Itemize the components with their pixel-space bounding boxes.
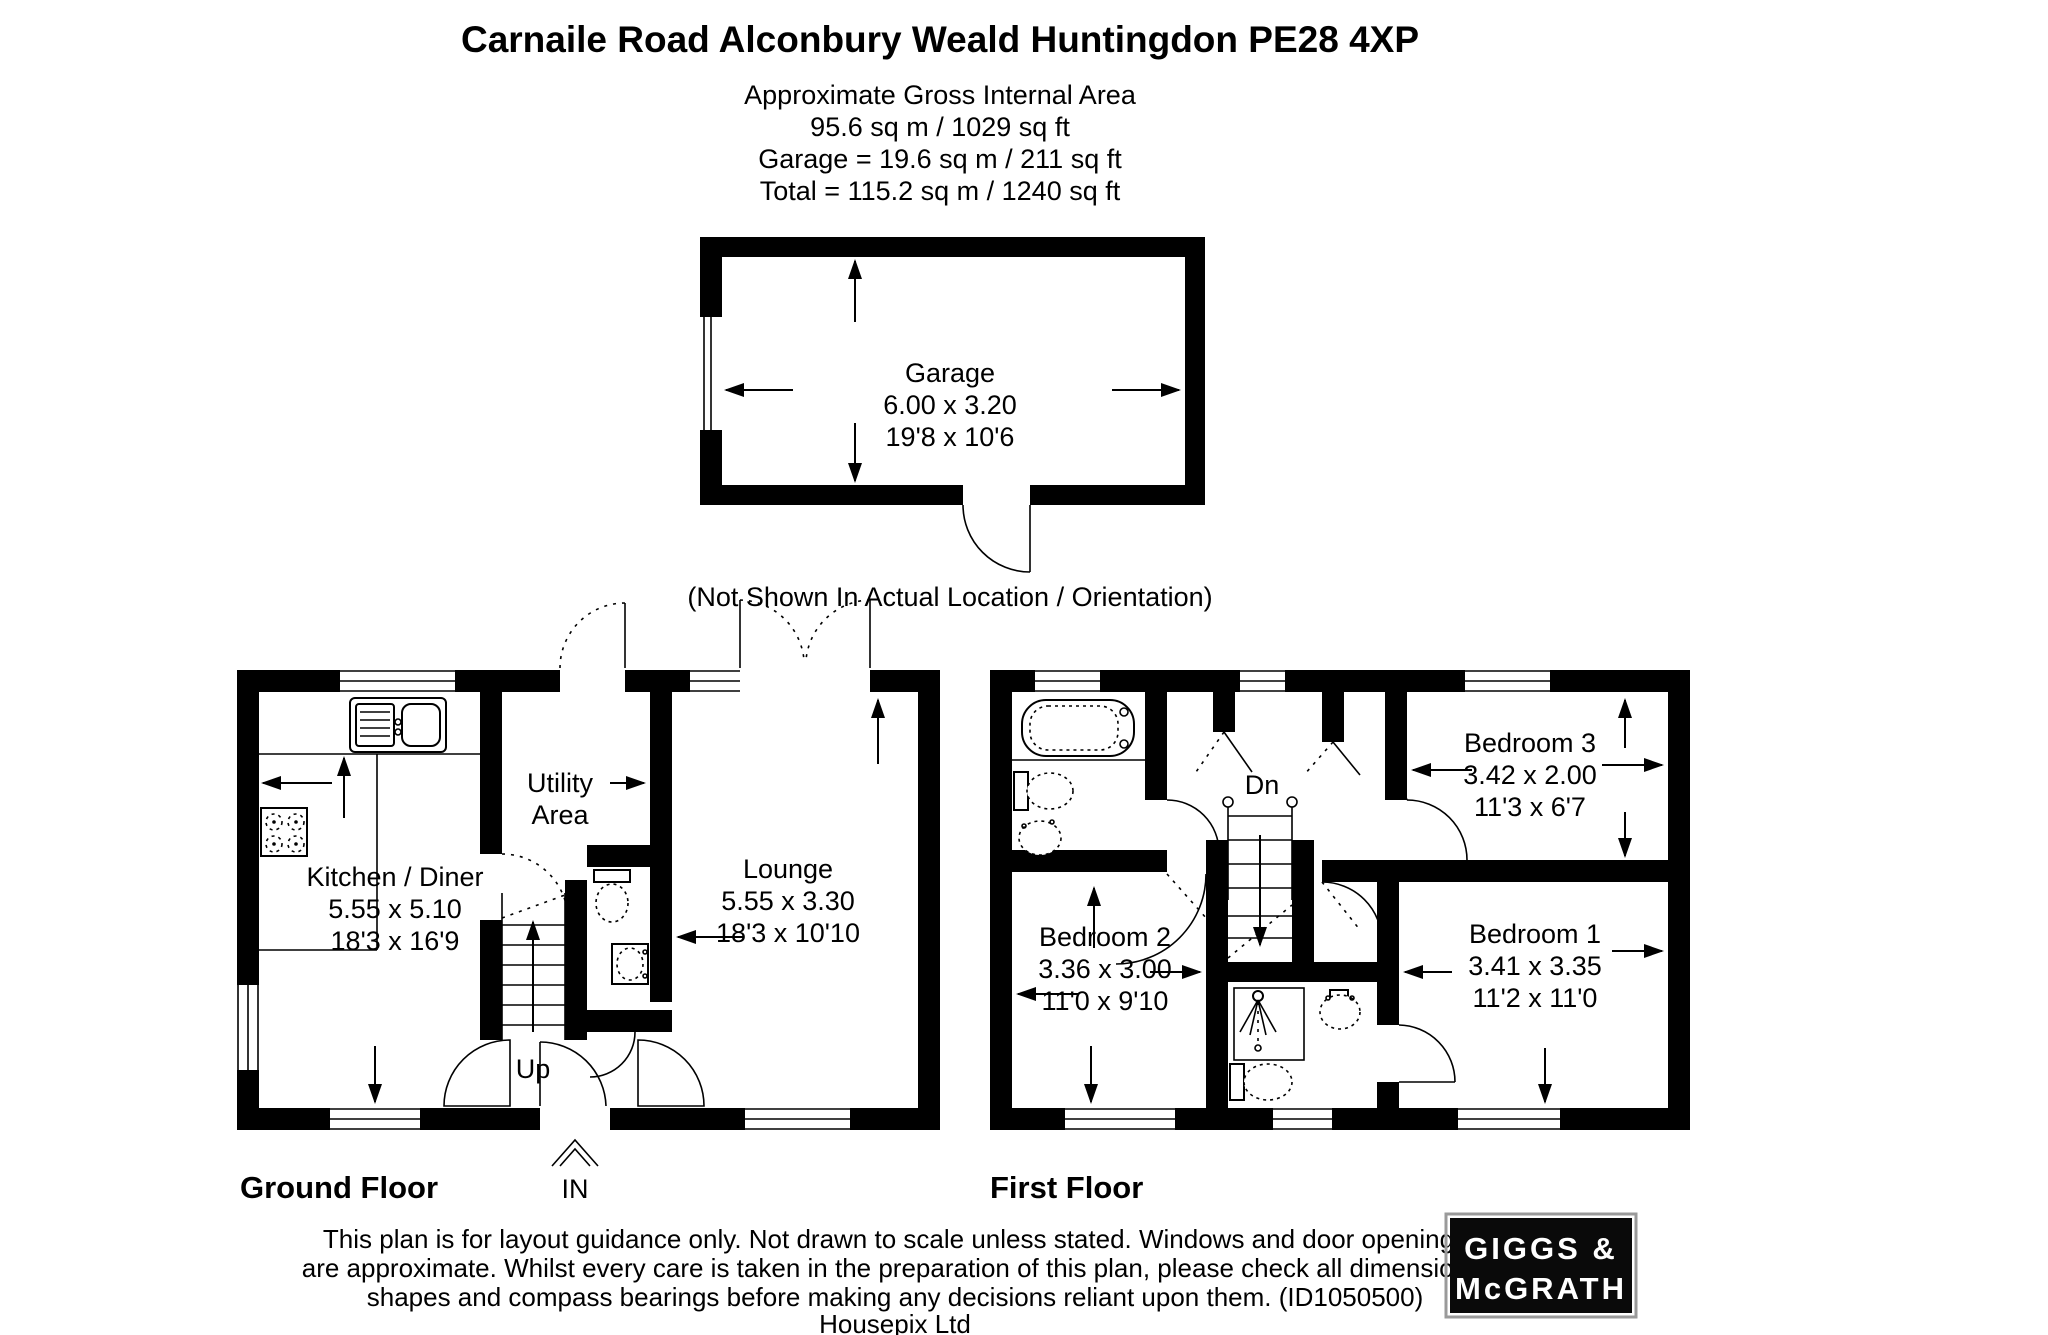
bedroom3-imperial: 11'3 x 6'7 xyxy=(1474,792,1586,822)
disclaimer-line-3: shapes and compass bearings before makin… xyxy=(367,1282,1424,1312)
shower-toilet-icon xyxy=(1230,1064,1292,1100)
area-line-1: Approximate Gross Internal Area xyxy=(744,80,1137,110)
kitchen-name: Kitchen / Diner xyxy=(306,862,483,892)
shower-basin-icon xyxy=(1320,990,1360,1029)
kitchen-bottom-window xyxy=(330,1109,420,1129)
stairs-up xyxy=(502,893,565,1040)
entrance-arrow-icon xyxy=(552,1140,598,1166)
first-floor-label: First Floor xyxy=(990,1170,1143,1205)
kitchen-side-window xyxy=(238,985,258,1070)
garage-door xyxy=(704,317,711,430)
bathroom-window xyxy=(1035,671,1100,691)
utility-label-2: Area xyxy=(531,800,589,830)
bedroom1-metric: 3.41 x 3.35 xyxy=(1468,951,1602,981)
ground-floor-plan: Kitchen / Diner 5.55 x 5.10 18'3 x 16'9 … xyxy=(237,600,940,1205)
stairs-up-label: Up xyxy=(516,1054,551,1084)
bathroom-toilet-icon xyxy=(1014,772,1073,810)
lounge-bottom-window xyxy=(745,1109,850,1129)
bedroom2-window xyxy=(1065,1109,1175,1129)
logo-line-1: GIGGS & xyxy=(1464,1231,1618,1266)
agency-logo: GIGGS & McGRATH xyxy=(1446,1214,1636,1317)
garage-note: (Not Shown In Actual Location / Orientat… xyxy=(687,582,1212,612)
bedroom3-name: Bedroom 3 xyxy=(1464,728,1596,758)
bedroom2-name: Bedroom 2 xyxy=(1039,922,1171,952)
wc-basin-icon xyxy=(612,944,648,984)
ground-floor-label: Ground Floor xyxy=(240,1170,438,1205)
shower-room-door-swing xyxy=(1399,1025,1455,1082)
page-title: Carnaile Road Alconbury Weald Huntingdon… xyxy=(461,19,1419,60)
utility-window xyxy=(690,671,740,691)
logo-line-2: McGRATH xyxy=(1455,1271,1627,1306)
landing-window xyxy=(1240,671,1285,691)
garage-name: Garage xyxy=(905,358,995,388)
stairs-down-label: Dn xyxy=(1245,770,1280,800)
bedroom1-name: Bedroom 1 xyxy=(1469,919,1601,949)
garage-side-door xyxy=(963,505,1030,572)
kitchen-sink-icon xyxy=(259,698,480,754)
disclaimer-line-2: are approximate. Whilst every care is ta… xyxy=(302,1253,1489,1283)
kitchen-door-swing xyxy=(444,1040,510,1106)
bedroom3-window xyxy=(1465,671,1550,691)
entrance-label: IN xyxy=(562,1174,589,1204)
area-line-2: 95.6 sq m / 1029 sq ft xyxy=(810,112,1070,142)
lounge-imperial: 18'3 x 10'10 xyxy=(716,918,860,948)
wc-toilet-icon xyxy=(594,870,630,922)
bedroom2-imperial: 11'0 x 9'10 xyxy=(1042,986,1169,1016)
first-floor-plan: Bedroom 3 3.42 x 2.00 11'3 x 6'7 Bedroom… xyxy=(990,670,1690,1205)
stairs-down xyxy=(1223,797,1297,958)
bathroom-basin-icon xyxy=(1019,820,1061,855)
bedroom1-window xyxy=(1458,1109,1560,1129)
garage-plan: Garage 6.00 x 3.20 19'8 x 10'6 xyxy=(700,237,1205,572)
lounge-metric: 5.55 x 3.30 xyxy=(721,886,855,916)
disclaimer-line-4: Housepix Ltd xyxy=(819,1309,971,1335)
floorplan-page: Carnaile Road Alconbury Weald Huntingdon… xyxy=(0,0,2048,1335)
kitchen-window xyxy=(340,671,455,691)
disclaimer: This plan is for layout guidance only. N… xyxy=(302,1224,1489,1335)
shower-room-window xyxy=(1273,1109,1332,1129)
area-line-3: Garage = 19.6 sq m / 211 sq ft xyxy=(758,144,1122,174)
garage-imperial: 19'8 x 10'6 xyxy=(886,422,1015,452)
utility-label-1: Utility xyxy=(527,768,593,798)
bedroom2-metric: 3.36 x 3.00 xyxy=(1038,954,1172,984)
bedroom1-imperial: 11'2 x 11'0 xyxy=(1473,983,1598,1013)
garage-metric: 6.00 x 3.20 xyxy=(883,390,1017,420)
disclaimer-line-1: This plan is for layout guidance only. N… xyxy=(323,1224,1467,1254)
utility-door-swing xyxy=(502,854,568,920)
bathtub-icon xyxy=(1012,700,1145,760)
header: Carnaile Road Alconbury Weald Huntingdon… xyxy=(461,19,1419,206)
shower-icon xyxy=(1234,988,1304,1060)
wc-door-swing xyxy=(590,1032,635,1077)
back-door xyxy=(560,603,625,668)
lounge-door-swing xyxy=(638,1040,704,1106)
lounge-name: Lounge xyxy=(743,854,833,884)
hob-icon xyxy=(261,808,307,856)
kitchen-metric: 5.55 x 5.10 xyxy=(328,894,462,924)
area-line-4: Total = 115.2 sq m / 1240 sq ft xyxy=(760,176,1121,206)
bedroom1-door-swing xyxy=(1322,882,1382,942)
kitchen-imperial: 18'3 x 16'9 xyxy=(331,926,460,956)
bedroom3-metric: 3.42 x 2.00 xyxy=(1463,760,1597,790)
